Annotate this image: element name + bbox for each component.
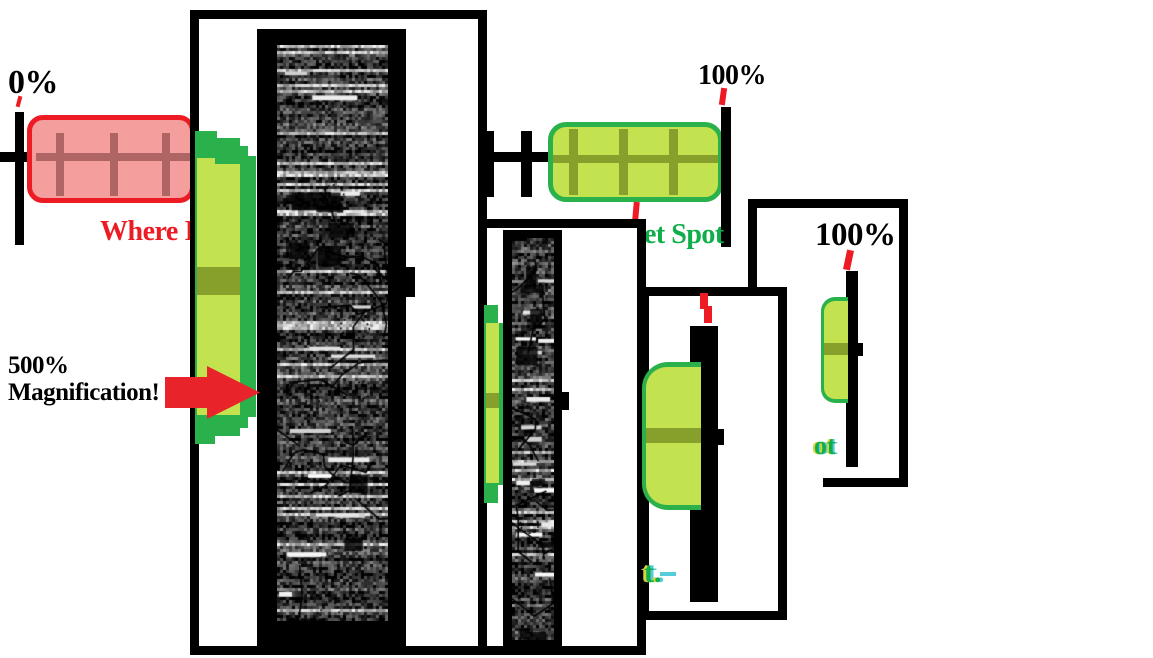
green-pill-tick <box>569 129 578 195</box>
label-magnification: 500% Magnification! <box>8 352 188 406</box>
glitch-text-t: t. <box>644 558 662 588</box>
bar-axis-left-stub <box>0 152 28 162</box>
green-pill-tick <box>619 129 628 195</box>
bar-notch-3 <box>718 429 724 445</box>
magnified-pill-band-1 <box>197 267 240 295</box>
label-100-percent-panel4: 100% <box>815 219 896 252</box>
red-pill-tick <box>110 133 118 196</box>
magnification-arrow <box>165 366 260 419</box>
half-pill-band-3 <box>646 428 701 443</box>
bar-notch-1 <box>406 267 415 297</box>
panel-4-border-gap <box>785 477 823 488</box>
label-sweet-spot: et Spot <box>644 221 724 249</box>
red-pill-tick <box>56 133 64 196</box>
zero-marker-line <box>15 112 24 245</box>
red-tick-under-100 <box>719 88 727 106</box>
bar-notch-4 <box>858 343 863 356</box>
bar-axis-mid-stub <box>487 152 549 162</box>
noise-texture-2 <box>512 238 554 640</box>
red-tick-panel3-b <box>704 306 712 323</box>
label-100-percent-top: 100% <box>698 62 766 90</box>
green-pill-tick <box>669 129 678 195</box>
meme-canvas: 0% Where I 100% et Spot 100% <box>0 0 1153 658</box>
magnified-pill-band-2 <box>486 393 499 408</box>
noise-texture-1 <box>277 45 388 621</box>
axis-tick-partial <box>486 131 494 197</box>
glitch-text-ot: ot <box>814 433 836 459</box>
axis-tick <box>521 131 532 197</box>
green-sweet-spot-pill <box>548 122 723 202</box>
bar-notch-2 <box>562 392 569 410</box>
magnified-needle-bar-1 <box>257 29 406 647</box>
label-where-i: Where I <box>100 218 195 246</box>
label-0-percent: 0% <box>8 66 58 100</box>
red-tick-sweet-spot <box>632 202 640 220</box>
red-progress-pill <box>27 115 195 203</box>
glitch-crossbar <box>660 572 676 576</box>
magnified-needle-bar-2 <box>503 230 562 648</box>
red-pill-tick <box>162 133 170 196</box>
half-pill-band-4 <box>824 343 848 355</box>
